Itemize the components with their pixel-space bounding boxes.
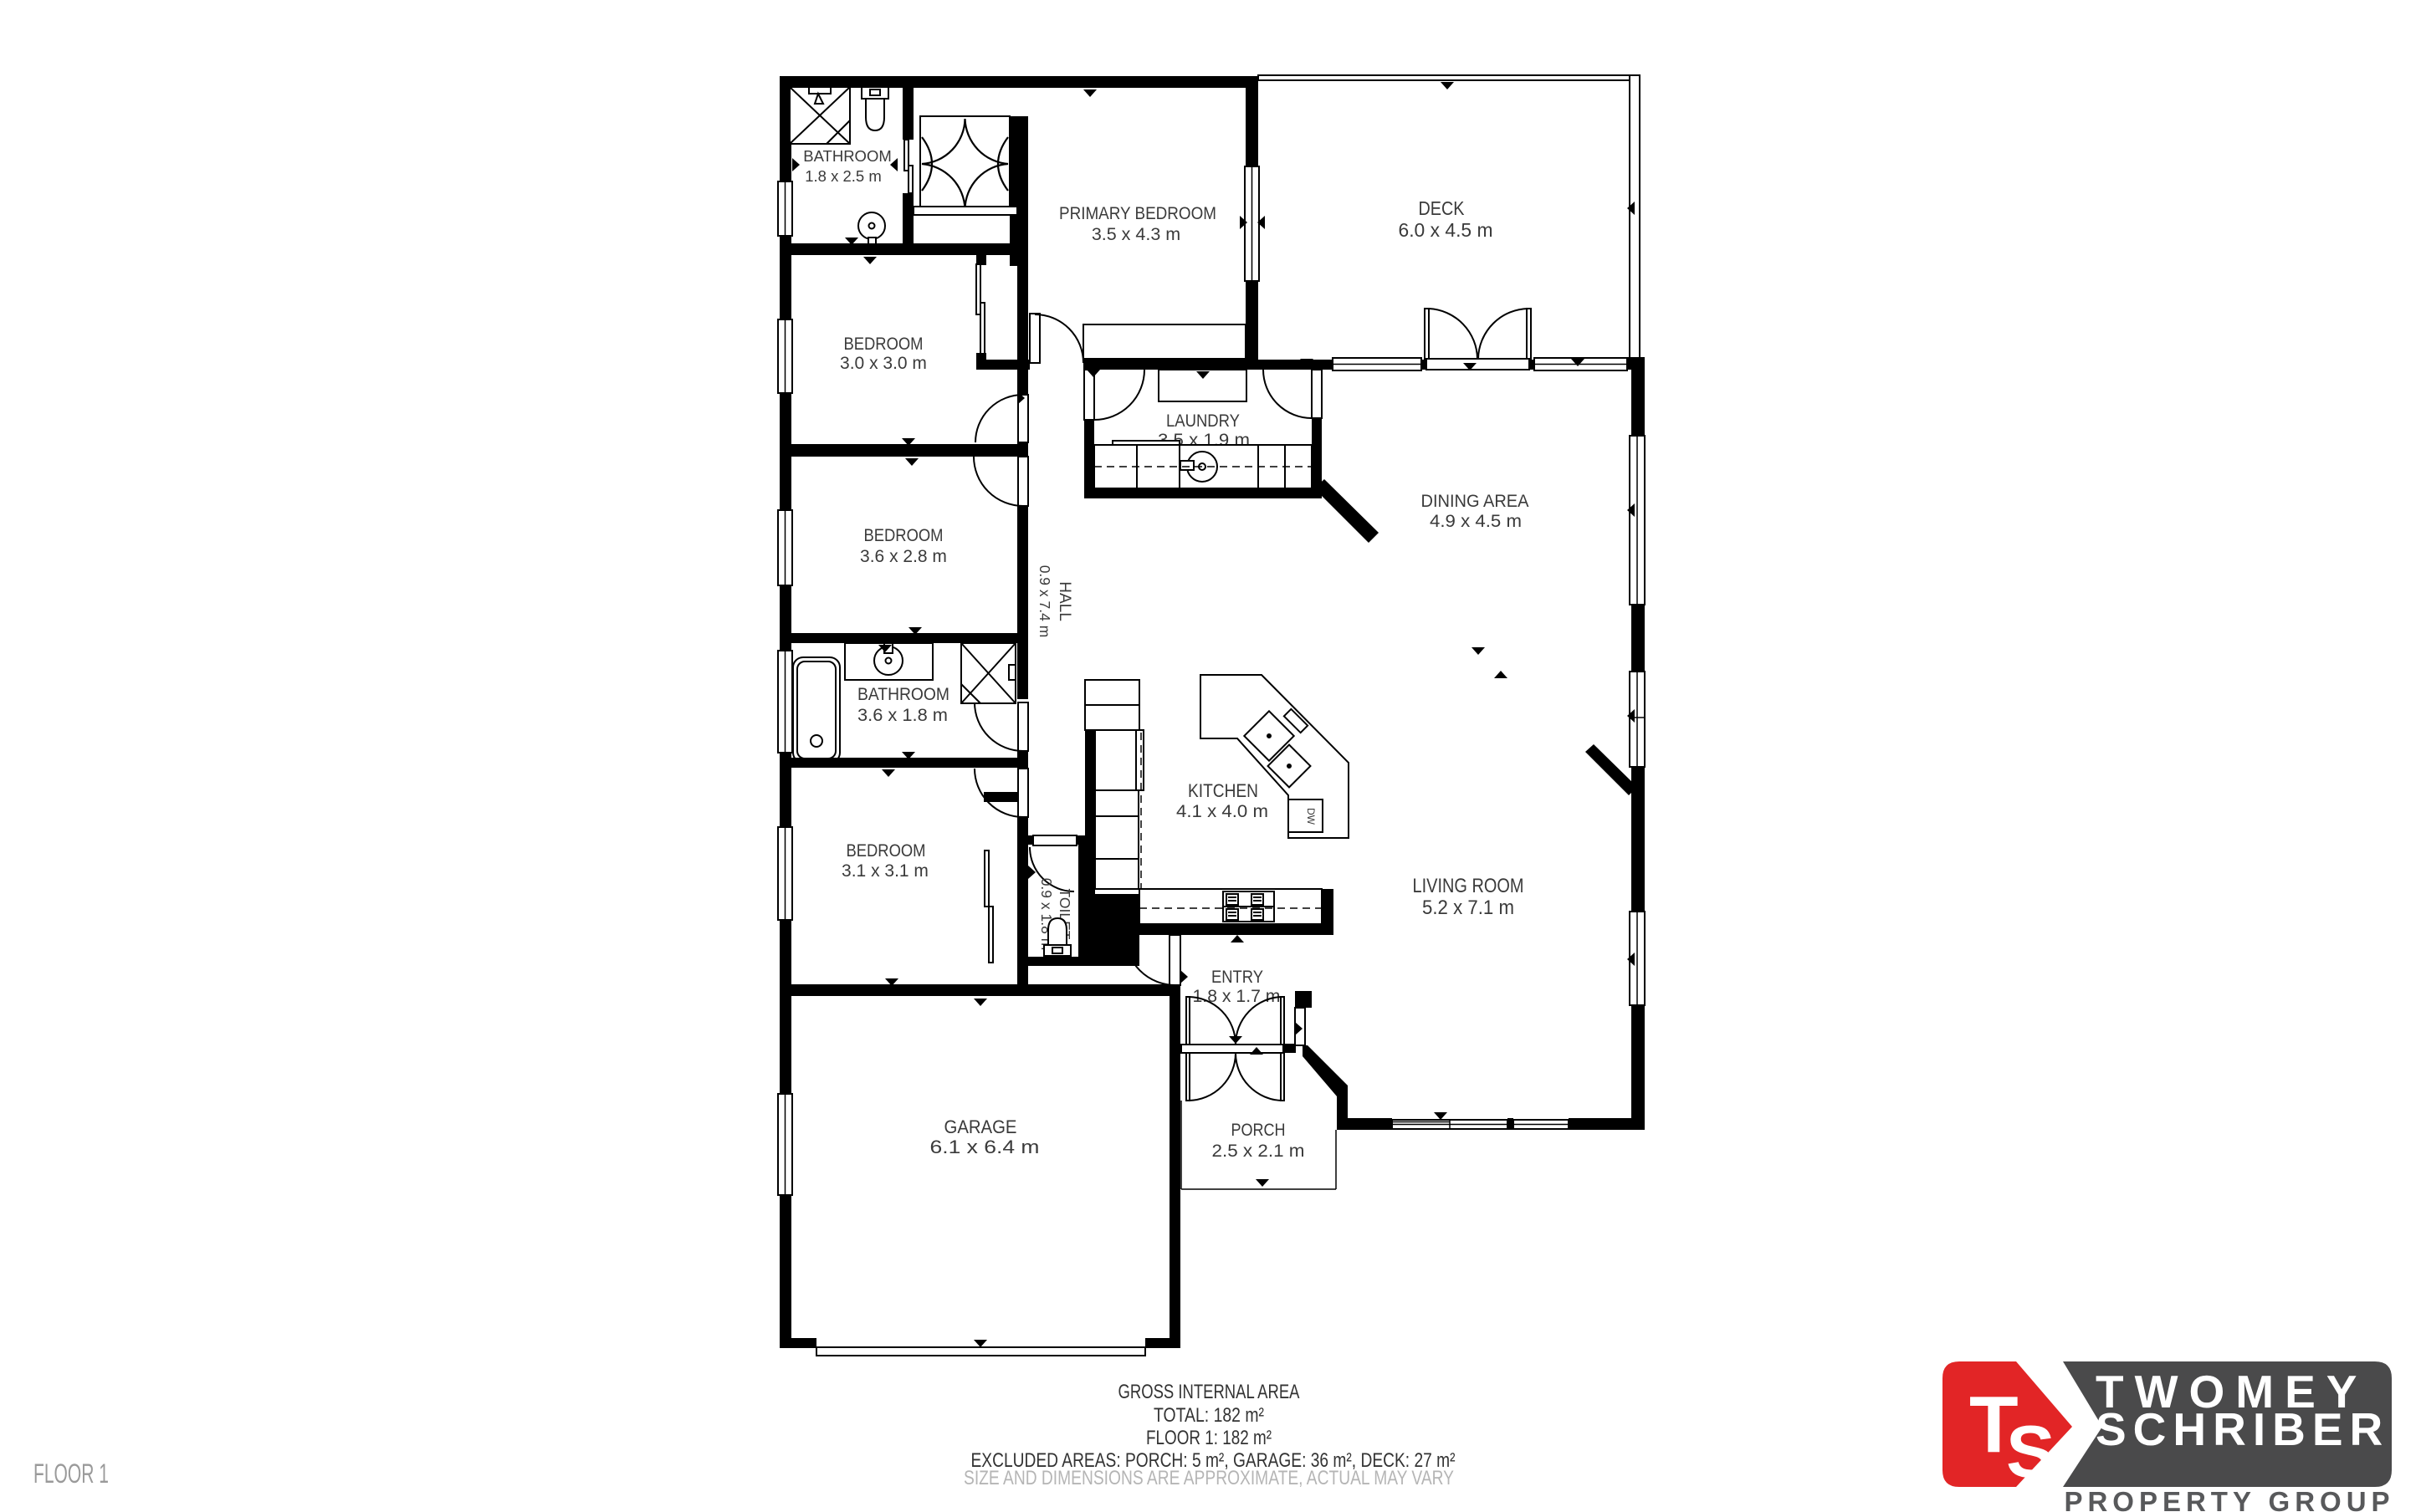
- svg-text:KITCHEN: KITCHEN: [1188, 780, 1258, 801]
- svg-text:6.1 x 6.4 m: 6.1 x 6.4 m: [930, 1137, 1040, 1157]
- svg-text:1.8 x 1.7 m: 1.8 x 1.7 m: [1193, 987, 1281, 1006]
- svg-text:SIZE AND DIMENSIONS ARE APPROX: SIZE AND DIMENSIONS ARE APPROXIMATE, ACT…: [964, 1467, 1454, 1489]
- svg-text:0.9 x 7.4 m: 0.9 x 7.4 m: [1036, 565, 1053, 638]
- svg-text:BEDROOM: BEDROOM: [864, 526, 944, 545]
- svg-text:3.1 x 3.1 m: 3.1 x 3.1 m: [842, 861, 929, 881]
- svg-text:GARAGE: GARAGE: [944, 1116, 1017, 1137]
- svg-text:4.9 x 4.5 m: 4.9 x 4.5 m: [1430, 512, 1522, 531]
- svg-text:DINING AREA: DINING AREA: [1421, 492, 1529, 511]
- svg-text:S: S: [2006, 1410, 2055, 1493]
- svg-text:DW: DW: [1305, 808, 1317, 825]
- svg-text:GROSS INTERNAL AREA: GROSS INTERNAL AREA: [1118, 1381, 1300, 1403]
- svg-text:TOTAL: 182 m²: TOTAL: 182 m²: [1154, 1404, 1264, 1427]
- svg-text:3.6 x 1.8 m: 3.6 x 1.8 m: [857, 705, 948, 725]
- svg-text:BATHROOM: BATHROOM: [803, 147, 892, 165]
- svg-text:BEDROOM: BEDROOM: [844, 335, 924, 354]
- svg-text:PROPERTY GROUP: PROPERTY GROUP: [2064, 1486, 2394, 1512]
- svg-text:5.2 x 7.1 m: 5.2 x 7.1 m: [1422, 896, 1514, 919]
- svg-text:PRIMARY BEDROOM: PRIMARY BEDROOM: [1059, 203, 1216, 223]
- svg-text:HALL: HALL: [1056, 581, 1073, 621]
- svg-text:3.6 x 2.8 m: 3.6 x 2.8 m: [860, 547, 947, 566]
- svg-text:1.8 x 2.5 m: 1.8 x 2.5 m: [805, 167, 882, 185]
- svg-text:FLOOR 1: 182 m²: FLOOR 1: 182 m²: [1146, 1427, 1272, 1449]
- svg-text:BATHROOM: BATHROOM: [857, 684, 949, 704]
- svg-text:4.1 x 4.0 m: 4.1 x 4.0 m: [1176, 802, 1268, 821]
- svg-text:3.0 x 3.0 m: 3.0 x 3.0 m: [840, 354, 927, 373]
- svg-text:3.5 x 4.3 m: 3.5 x 4.3 m: [1092, 224, 1180, 244]
- svg-text:LIVING ROOM: LIVING ROOM: [1413, 875, 1524, 897]
- svg-text:6.0 x 4.5 m: 6.0 x 4.5 m: [1399, 219, 1493, 241]
- svg-text:FLOOR 1: FLOOR 1: [33, 1458, 109, 1489]
- svg-text:DECK: DECK: [1419, 197, 1466, 219]
- svg-text:ENTRY: ENTRY: [1211, 968, 1263, 987]
- svg-text:BEDROOM: BEDROOM: [847, 841, 926, 861]
- svg-text:SCHRIBER: SCHRIBER: [2096, 1403, 2389, 1455]
- svg-text:LAUNDRY: LAUNDRY: [1166, 411, 1240, 431]
- svg-text:PORCH: PORCH: [1231, 1120, 1286, 1140]
- svg-text:2.5 x 2.1 m: 2.5 x 2.1 m: [1212, 1141, 1305, 1161]
